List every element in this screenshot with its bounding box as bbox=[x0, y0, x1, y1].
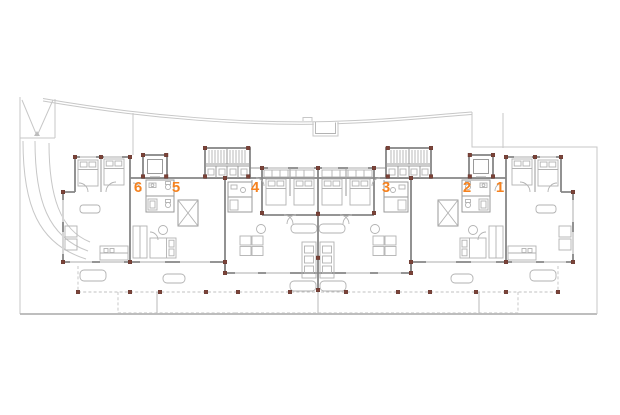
building-east-wing bbox=[318, 146, 575, 313]
unit-3-label: 3 bbox=[382, 179, 390, 196]
floor-plan-canvas: 6 5 4 3 2 1 bbox=[0, 0, 620, 415]
unit-5-label: 5 bbox=[172, 179, 180, 196]
unit-2-label: 2 bbox=[463, 179, 471, 196]
building-west-wing bbox=[61, 146, 318, 313]
access-road-curves bbox=[23, 141, 90, 259]
unit-6-label: 6 bbox=[134, 179, 142, 196]
floor-plan: 6 5 4 3 2 1 bbox=[0, 0, 620, 415]
building-centre-wall bbox=[235, 166, 401, 313]
unit-labels: 6 5 4 3 2 1 bbox=[134, 179, 504, 196]
unit-4-label: 4 bbox=[251, 179, 260, 196]
unit-1-label: 1 bbox=[496, 179, 504, 196]
